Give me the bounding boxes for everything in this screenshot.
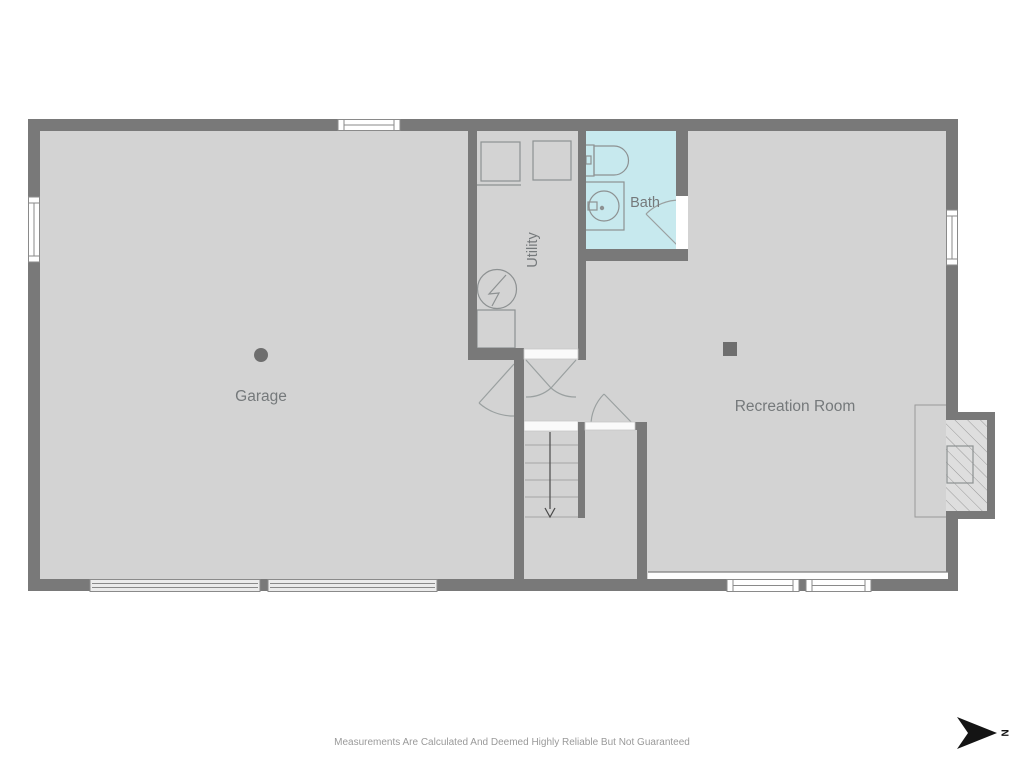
garage-door-2: [268, 580, 437, 592]
utility-bath-divider-wall: [578, 131, 586, 360]
stair-hall-left-wall: [514, 352, 524, 579]
chimney-hatch: [946, 420, 987, 511]
floor-plan-canvas: Garage Utility Bath Recreation Room Meas…: [0, 0, 1024, 768]
garage-door-1: [90, 580, 260, 592]
disclaimer-text: Measurements Are Calculated And Deemed H…: [334, 737, 690, 748]
hall-rec-divider-wall: [637, 422, 647, 579]
recreation-bottom-window-2: [806, 580, 871, 592]
fireplace-chimney: [946, 420, 987, 511]
garage-left-window: [29, 197, 40, 262]
floor-drain-icon: [254, 348, 268, 362]
garage-label: Garage: [235, 388, 287, 405]
north-compass: N: [957, 717, 1010, 749]
garage-utility-wall: [468, 131, 477, 360]
north-label: N: [999, 729, 1010, 736]
fireplace-wall-right: [987, 412, 995, 519]
north-arrow-icon: [957, 717, 997, 749]
recreation-right-window: [947, 210, 958, 265]
stair-landing: [524, 421, 578, 431]
stair-right-wall: [578, 422, 585, 518]
recreation-room-label: Recreation Room: [735, 398, 856, 415]
exterior-wall-right-lower: [946, 519, 958, 591]
bath-bottom-wall: [578, 249, 688, 261]
support-post-icon: [723, 342, 737, 356]
exterior-wall-top: [28, 119, 958, 131]
bath-label: Bath: [630, 195, 660, 211]
window-sill-strip: [648, 572, 948, 580]
floor-plan-page: Garage Utility Bath Recreation Room Meas…: [0, 0, 1024, 768]
recreation-bottom-window-1: [727, 580, 799, 592]
rec-door-opening: [585, 422, 635, 430]
fireplace-hearth: [915, 405, 947, 517]
utility-door-opening: [524, 349, 578, 359]
utility-label: Utility: [525, 232, 541, 268]
exterior-wall-left: [28, 119, 40, 591]
fireplace-wall-bottom: [946, 511, 995, 519]
bath-door-opening: [676, 196, 688, 249]
sink-drain-icon: [600, 206, 604, 210]
recreation-bottom-window-strip: [648, 572, 948, 580]
garage-top-window: [338, 120, 400, 131]
